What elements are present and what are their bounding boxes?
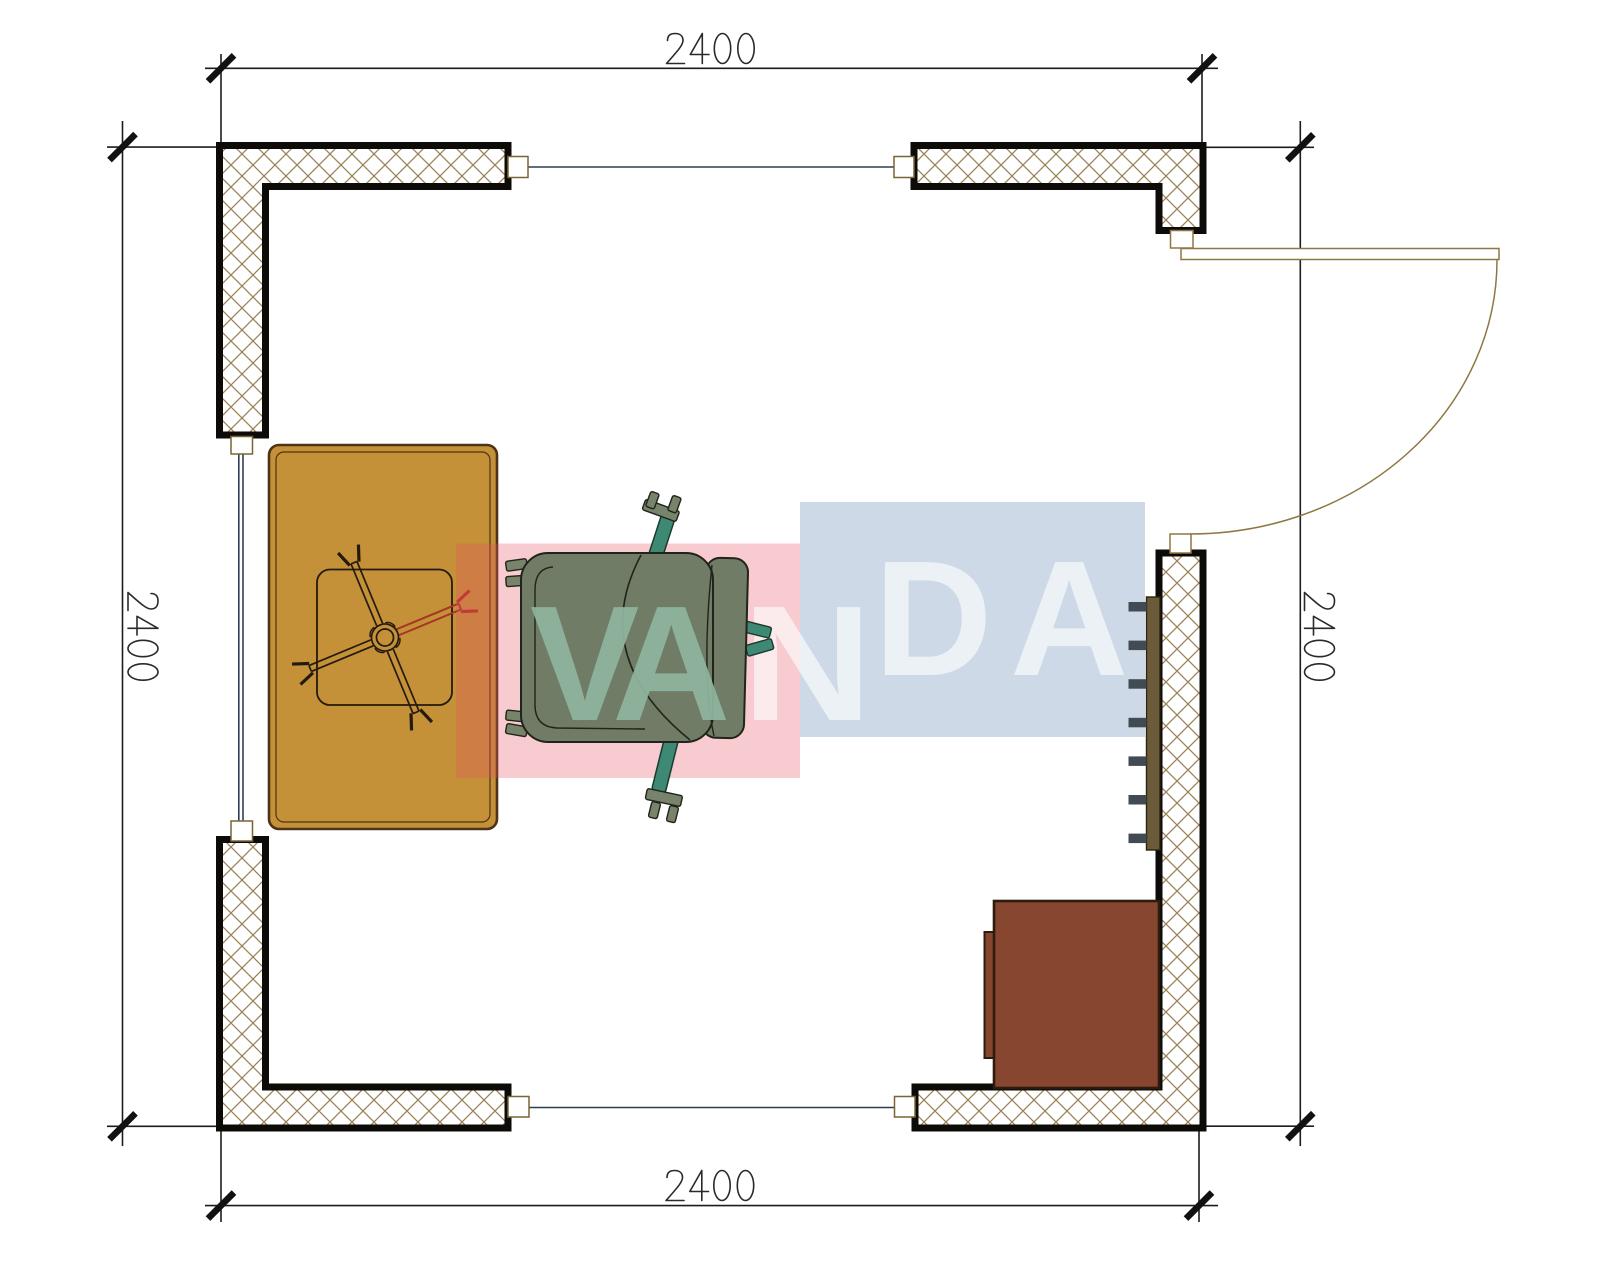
svg-text:A: A [1010,527,1128,710]
svg-text:D: D [874,527,992,710]
svg-text:A: A [612,572,730,755]
svg-text:N: N [742,572,872,756]
